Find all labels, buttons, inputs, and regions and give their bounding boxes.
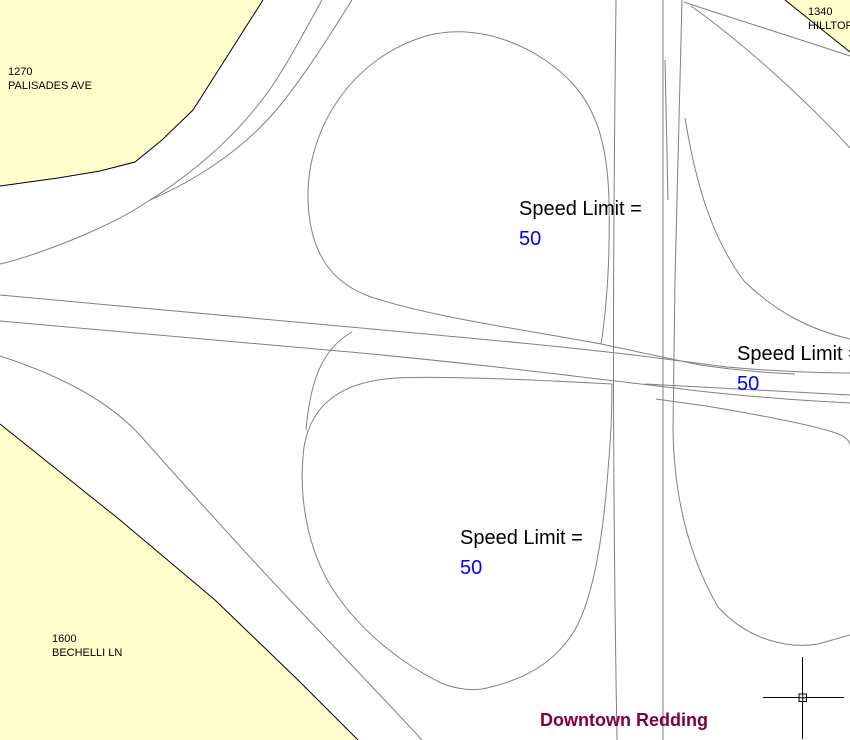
freeway-line-west (614, 0, 618, 740)
arterial-line-north (0, 295, 850, 373)
map-canvas[interactable]: 1270 PALISADES AVE 1340 HILLTOP 1600 BEC… (0, 0, 850, 740)
freeway-edge-and-se-loop (673, 0, 850, 645)
ne-loop-bottom-edge (685, 118, 850, 339)
road-network-layer (0, 0, 850, 740)
nw-loop-merge-line (601, 344, 795, 374)
arterial-line-south (0, 321, 850, 403)
sw-loop-merge-line (306, 332, 352, 430)
arterial-gore-line (645, 384, 850, 395)
crosshair-cursor (763, 657, 844, 739)
nw-ramp-merged (0, 202, 147, 264)
se-loop-top-edge (656, 399, 850, 444)
parcel-bechelli (0, 424, 358, 740)
sw-loop-outline (302, 377, 612, 689)
freeway-gore-line (665, 60, 668, 200)
nw-loop-outline (308, 32, 609, 344)
